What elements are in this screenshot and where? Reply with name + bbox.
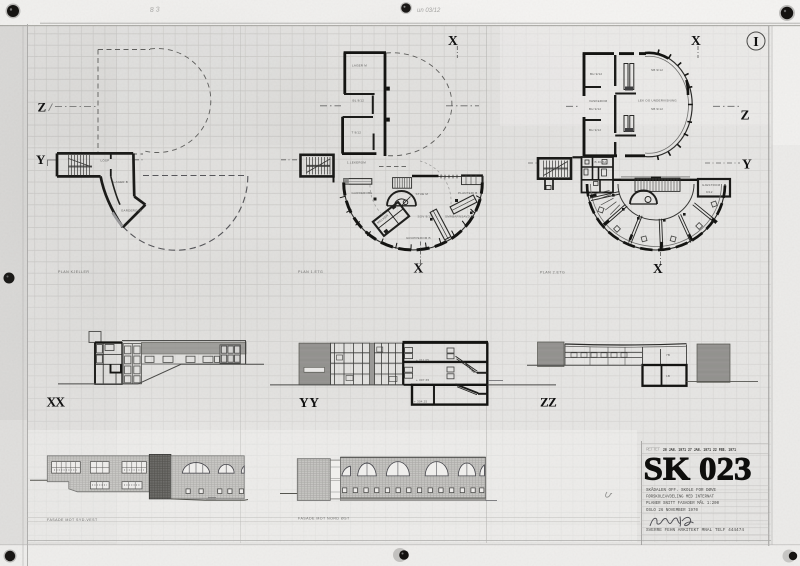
svg-text:YY: YY — [299, 395, 320, 410]
svg-text:STUE M: STUE M — [416, 192, 429, 196]
svg-text:ZZ: ZZ — [540, 395, 557, 410]
svg-text:FASADE MOT SYD-VEST: FASADE MOT SYD-VEST — [47, 518, 98, 522]
svg-text:T 9/12: T 9/12 — [352, 131, 362, 135]
svg-text:I: I — [753, 35, 758, 50]
svg-text:PLAN 1.ETG: PLAN 1.ETG — [298, 270, 323, 274]
svg-text:SB 9/12: SB 9/12 — [651, 107, 663, 111]
svg-text:VASKEROM: VASKEROM — [589, 99, 608, 103]
svg-text:XX: XX — [47, 395, 66, 410]
svg-text:SOV 9/12: SOV 9/12 — [418, 214, 433, 218]
svg-text:SK 023: SK 023 — [644, 452, 752, 488]
svg-text:X: X — [448, 33, 458, 48]
svg-text:BL 9/12: BL 9/12 — [353, 99, 365, 103]
svg-text:LAGER B: LAGER B — [114, 180, 128, 184]
svg-text:PLANER SNITT FASADER MÅL 1:20: PLANER SNITT FASADER MÅL 1:200 — [646, 501, 719, 506]
svg-text:X: X — [414, 261, 424, 276]
svg-text:X: X — [653, 261, 663, 276]
svg-text:un 03/12: un 03/12 — [417, 8, 441, 14]
svg-text:7B: 7B — [666, 353, 670, 357]
svg-text:B.DUSJ: B.DUSJ — [595, 160, 607, 164]
svg-text:BH 9/12: BH 9/12 — [589, 107, 601, 111]
svg-text:SMÅBARNSAVD B: SMÅBARNSAVD B — [445, 213, 473, 218]
svg-text:GJESTROM: GJESTROM — [702, 183, 721, 187]
svg-text:LEK OG UNDERVISNING: LEK OG UNDERVISNING — [638, 99, 677, 103]
svg-text:GRUPPEROM B: GRUPPEROM B — [406, 236, 431, 240]
svg-text:BH 9/12: BH 9/12 — [589, 128, 601, 132]
svg-text:+ 304.25: + 304.25 — [414, 400, 427, 404]
svg-text:Z: Z — [741, 108, 750, 123]
svg-text:Z: Z — [38, 100, 47, 115]
svg-text:FØRSKOLEAVDELING MED INTERNAT: FØRSKOLEAVDELING MED INTERNAT — [646, 494, 714, 499]
svg-text:+ 307.65: + 307.65 — [416, 378, 429, 382]
svg-text:OSLO 26 NOVEMBER 1970: OSLO 26 NOVEMBER 1970 — [646, 508, 698, 513]
svg-text:8 3: 8 3 — [150, 6, 160, 14]
svg-text:BH 9/12: BH 9/12 — [590, 72, 602, 76]
svg-text:SKÅDALEN OFF. SKOLE FOR DØVE: SKÅDALEN OFF. SKOLE FOR DØVE — [646, 488, 716, 493]
svg-text:PLAN 2.ETG: PLAN 2.ETG — [540, 271, 565, 275]
svg-text:LAGER M: LAGER M — [352, 64, 367, 68]
svg-text:SB 9/12: SB 9/12 — [651, 68, 663, 72]
svg-text:Y: Y — [742, 157, 752, 172]
svg-text:GARDEROBE: GARDEROBE — [352, 191, 373, 195]
svg-text:PLANTERI B: PLANTERI B — [458, 191, 478, 195]
svg-text:FASADE MOT NORD ØST: FASADE MOT NORD ØST — [298, 516, 350, 520]
svg-text:GARDEROBE: GARDEROBE — [121, 209, 142, 213]
svg-text:1.LEKEROM: 1.LEKEROM — [347, 161, 366, 165]
svg-text:9/12: 9/12 — [706, 190, 713, 194]
svg-text:Y: Y — [36, 152, 46, 167]
svg-text:1B: 1B — [666, 374, 670, 378]
svg-text:PLAN KJELLER: PLAN KJELLER — [58, 270, 89, 274]
svg-text:SVERRE FEHN ARKITEKT MNAL T: SVERRE FEHN ARKITEKT MNAL TELF 444474 — [646, 528, 744, 533]
svg-text:LÖSP: LÖSP — [101, 158, 110, 162]
svg-text:+ 311.05: + 311.05 — [416, 358, 429, 362]
svg-text:X: X — [691, 33, 701, 48]
